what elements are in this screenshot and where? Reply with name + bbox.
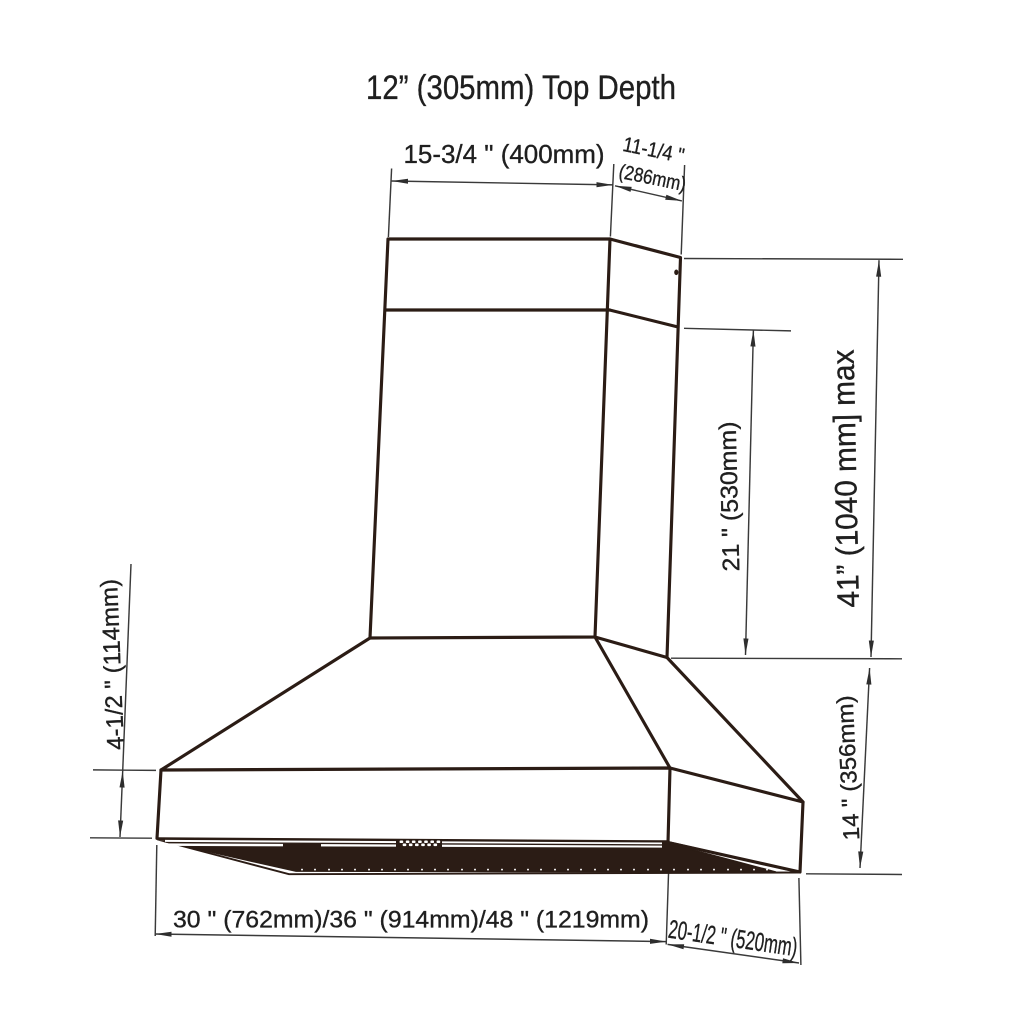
svg-text:21 " (530mm): 21 " (530mm) [715, 421, 746, 572]
svg-text:12” (305mm) Top Depth: 12” (305mm) Top Depth [366, 69, 676, 107]
svg-text:41” (1040 mm] max: 41” (1040 mm] max [826, 349, 866, 608]
svg-text:15-3/4 " (400mm): 15-3/4 " (400mm) [404, 139, 605, 169]
svg-text:30 " (762mm)/36 " (914mm)/48 ": 30 " (762mm)/36 " (914mm)/48 " (1219mm) [173, 907, 649, 934]
